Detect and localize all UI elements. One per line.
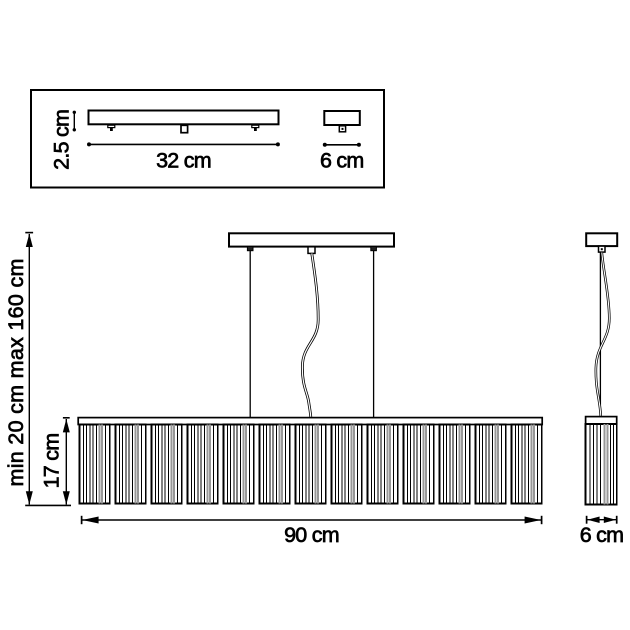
svg-text:6 cm: 6 cm [580,523,624,547]
svg-text:90 cm: 90 cm [284,523,339,547]
svg-text:32 cm: 32 cm [156,149,211,173]
svg-text:2.5 cm: 2.5 cm [50,110,74,170]
svg-text:17 cm: 17 cm [40,434,64,489]
svg-text:6 cm: 6 cm [320,149,364,173]
svg-text:min 20 cm max 160 cm: min 20 cm max 160 cm [4,258,28,486]
